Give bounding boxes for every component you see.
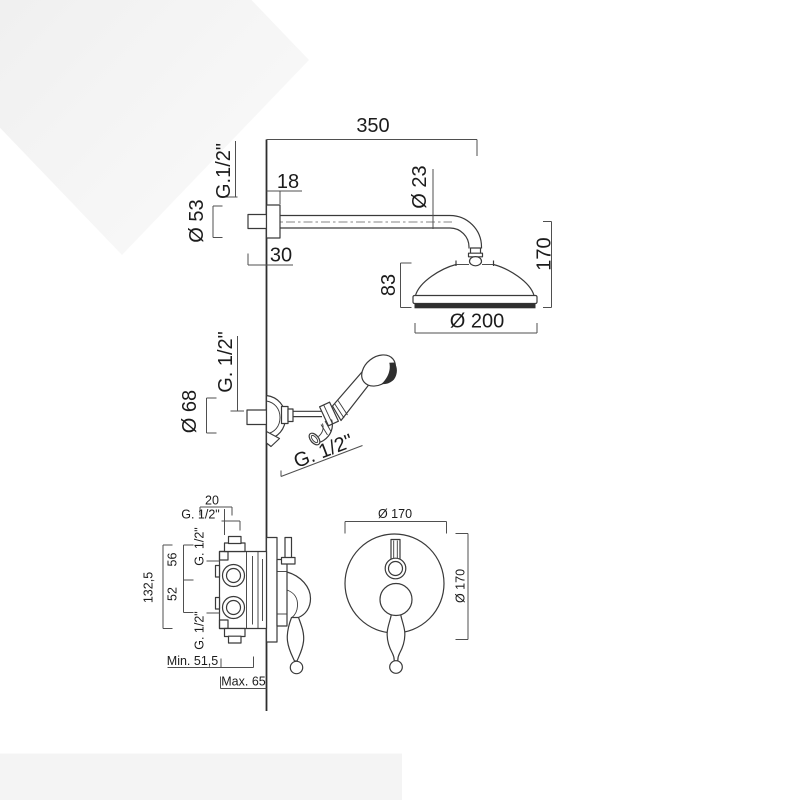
valve-tab-upper bbox=[216, 566, 220, 578]
thread-wall-top-label: G.1/2" bbox=[213, 143, 235, 199]
holder-ring-1 bbox=[282, 407, 289, 424]
valve-tab-lower bbox=[216, 598, 220, 610]
valve-top-nipple-thread bbox=[229, 537, 242, 544]
arm-wall-nipple bbox=[248, 215, 267, 229]
diverter-stem-base bbox=[282, 558, 296, 565]
dia-53-label: Ø 53 bbox=[186, 199, 208, 242]
dia-170-width-label: Ø 170 bbox=[378, 507, 412, 521]
head-connector-ball bbox=[470, 257, 482, 266]
valve-body bbox=[220, 552, 267, 629]
technical-drawing-page: 350 G.1/2" Ø 53 18 Ø 23 30 83 170 bbox=[0, 0, 800, 800]
dim-min-label: Min. 51,5 bbox=[167, 654, 218, 668]
dim-18-label: 18 bbox=[277, 171, 299, 193]
head-rim bbox=[413, 296, 537, 304]
dim-52-label: 52 bbox=[166, 587, 180, 601]
thread-lower-port-label: G. 1/2" bbox=[193, 611, 207, 649]
dia-23-label: Ø 23 bbox=[409, 165, 431, 208]
dim-132-5-label: 132,5 bbox=[142, 572, 156, 603]
dia-68-label: Ø 68 bbox=[179, 390, 201, 433]
dim-max-label: Max. 65 bbox=[221, 675, 266, 689]
valve-sleeve bbox=[277, 560, 287, 627]
dim-350-label: 350 bbox=[356, 115, 389, 137]
valve-port-upper-outer bbox=[223, 565, 245, 587]
dim-30-label: 30 bbox=[270, 245, 292, 267]
label-thread-wall-top: G.1/2" bbox=[213, 141, 238, 199]
dim-max-65: Max. 65 bbox=[221, 675, 267, 689]
dim-83-label: 83 bbox=[378, 274, 400, 296]
lever-knob-front bbox=[380, 584, 412, 616]
shower-system-drawing: 350 G.1/2" Ø 53 18 Ø 23 30 83 170 bbox=[0, 0, 800, 800]
thread-wall-hand-label: G. 1/2" bbox=[215, 331, 237, 393]
valve-top-nipple bbox=[225, 543, 246, 552]
valve-mounting-plate bbox=[267, 538, 278, 643]
lever-ball-side bbox=[290, 661, 302, 673]
hand-shower-wall-nipple bbox=[247, 410, 267, 425]
valve-port-lower-outer bbox=[223, 597, 245, 619]
thread-top-port-label: G. 1/2" bbox=[181, 508, 219, 522]
head-rim-band bbox=[415, 304, 536, 309]
dim-20-label: 20 bbox=[205, 494, 219, 508]
arm-flange bbox=[267, 205, 281, 238]
lever-ball-front bbox=[390, 661, 403, 674]
holder-ring-2 bbox=[288, 409, 293, 422]
dia-170-height-label: Ø 170 bbox=[454, 569, 468, 603]
dim-56-label: 56 bbox=[166, 553, 180, 567]
background-bottom-band bbox=[0, 754, 402, 800]
valve-bottom-nipple bbox=[225, 629, 246, 637]
thread-upper-port-label: G. 1/2" bbox=[193, 527, 207, 565]
dim-170-label: 170 bbox=[534, 237, 556, 270]
valve-bottom-nipple-thread bbox=[229, 636, 242, 643]
dia-200-label: Ø 200 bbox=[450, 311, 504, 333]
